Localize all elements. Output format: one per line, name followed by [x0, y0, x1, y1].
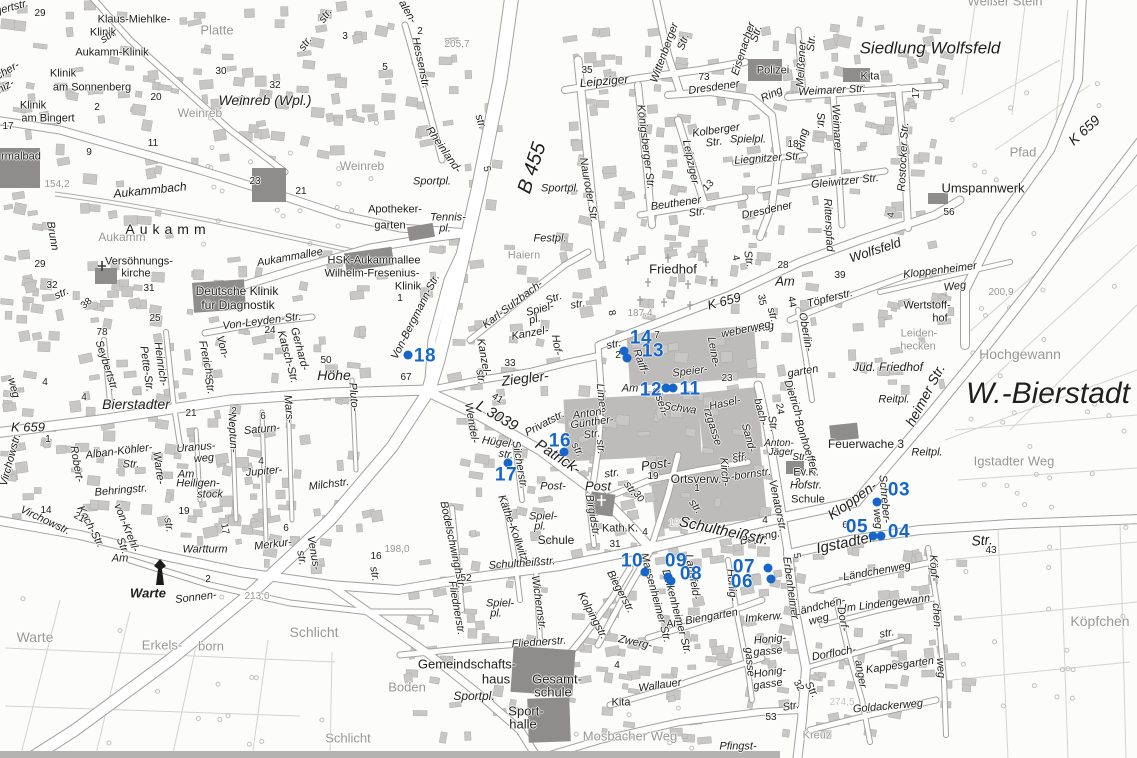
marker-dot-18[interactable] — [404, 351, 413, 360]
poi-marker-09[interactable]: 09 — [665, 552, 687, 571]
marker-dot-05[interactable] — [869, 532, 878, 541]
poi-marker-16[interactable]: 16 — [549, 432, 571, 451]
poi-marker-14[interactable]: 14 — [630, 329, 652, 348]
marker-dot-09[interactable] — [664, 573, 673, 582]
poi-marker-05[interactable]: 05 — [846, 518, 868, 537]
poi-marker-12[interactable]: 12 — [640, 381, 662, 400]
marker-dot-14[interactable] — [620, 347, 629, 356]
poi-marker-04[interactable]: 04 — [888, 523, 910, 542]
map-markers-layer: 030405060708091011121314161718 — [0, 0, 1137, 758]
poi-marker-07[interactable]: 07 — [733, 558, 755, 577]
marker-dot-06[interactable] — [767, 575, 776, 584]
marker-dot-07[interactable] — [764, 564, 773, 573]
poi-marker-10[interactable]: 10 — [621, 552, 643, 571]
poi-marker-18[interactable]: 18 — [414, 347, 436, 366]
poi-marker-11[interactable]: 11 — [679, 380, 700, 399]
poi-marker-17[interactable]: 17 — [495, 466, 517, 485]
marker-dot-12[interactable] — [662, 384, 671, 393]
marker-dot-03[interactable] — [873, 498, 882, 507]
city-map[interactable]: Klaus-Miehlke-KlinikAukamm-KlinikKlinika… — [0, 0, 1137, 758]
marker-dot-04[interactable] — [877, 532, 886, 541]
poi-marker-03[interactable]: 03 — [888, 481, 910, 500]
